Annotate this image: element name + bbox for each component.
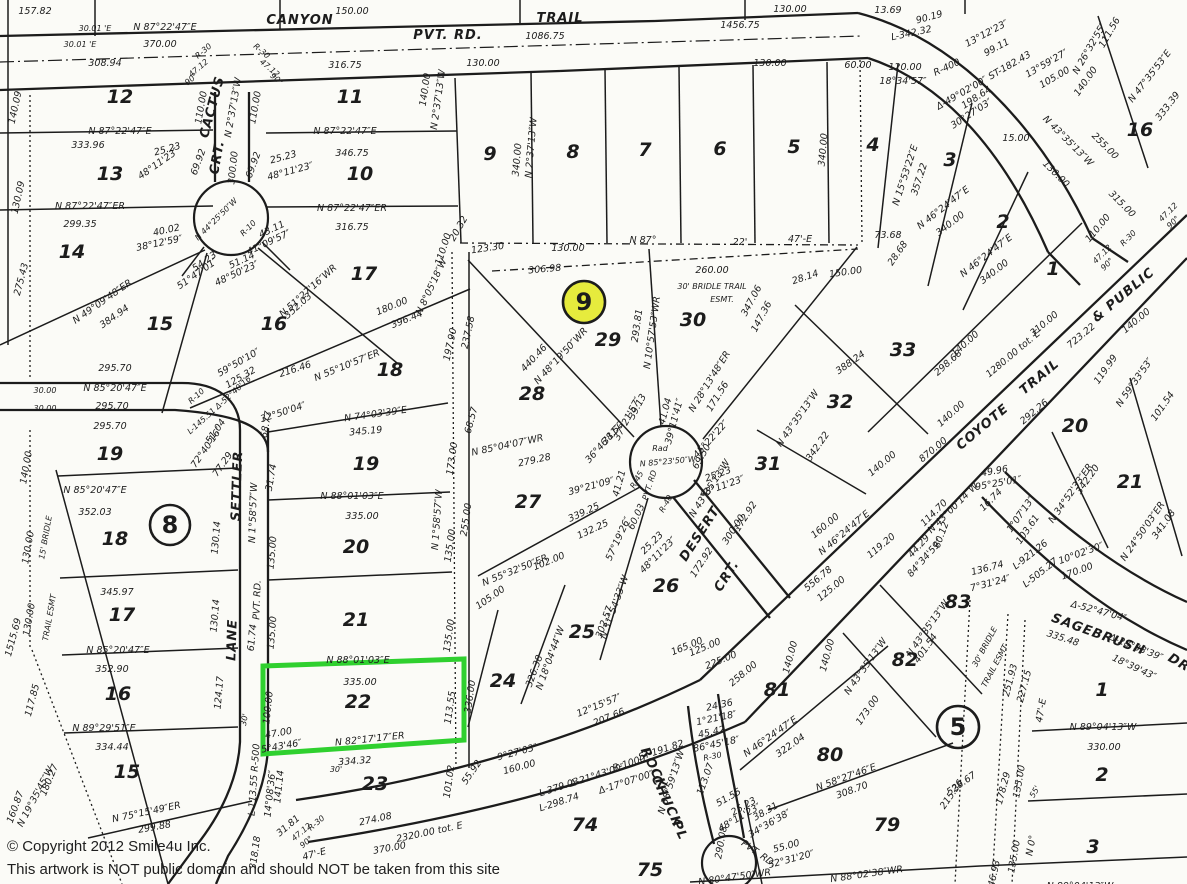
lot-number: 18 — [102, 528, 128, 550]
measurement-label: 140.00 — [418, 72, 434, 106]
measurement-label: N 87°22'47″ER — [317, 203, 387, 214]
lot-boundary-line — [860, 60, 862, 243]
measurement-label: 22' — [733, 237, 748, 248]
measurement-label: 255.00 — [459, 502, 475, 536]
section8-marker-label: 8 — [162, 511, 179, 539]
street-name: LANE — [224, 619, 240, 662]
measurement-label: 333.96 — [71, 140, 104, 151]
measurement-label: 46.93 — [986, 859, 1002, 884]
measurement-label: 20.32 — [447, 214, 470, 243]
section5-marker-label: 5 — [950, 713, 967, 741]
measurement-label: N 1°58'57″W — [430, 489, 445, 551]
measurement-label: 30' BRIDLE TRAIL — [677, 282, 746, 291]
measurement-label: N 87° — [630, 235, 657, 246]
measurement-label: 105.00 — [474, 584, 508, 612]
measurement-label: 225.00 — [704, 649, 739, 672]
measurement-label: 28.14 — [791, 268, 820, 287]
measurement-label: 340.00 — [511, 143, 525, 177]
measurement-label: 298.68 — [932, 348, 964, 378]
measurement-label: 342.22 — [804, 430, 832, 464]
measurement-label: 130.14 — [209, 599, 223, 633]
measurement-label: 370.00 — [372, 840, 407, 857]
lot-number: 3 — [1086, 836, 1099, 858]
lot-number: 24 — [490, 670, 516, 692]
measurement-label: N 87°22'47″E — [133, 22, 196, 33]
plat-map-drawing: 985157.82150.00130.0013.6990.1930.01 'EN… — [0, 0, 1187, 884]
measurement-label: 333.39 — [1153, 90, 1182, 123]
lot-number: 17 — [109, 604, 136, 626]
measurement-label: 315.00 — [1106, 189, 1137, 220]
measurement-label: 335.00 — [345, 511, 378, 522]
measurement-label: N 80°47'50″WR — [698, 867, 772, 884]
lot-number: 17 — [351, 263, 378, 285]
lot-number: 26 — [653, 575, 679, 597]
road-edge-path — [0, 410, 268, 452]
street-name: PVT. RD. — [413, 28, 482, 43]
lot-number: 13 — [97, 163, 123, 185]
measurement-label: N 0° — [1024, 834, 1038, 857]
measurement-label: 316.75 — [328, 60, 361, 71]
measurement-label: 10°02'30″ — [1057, 540, 1106, 567]
measurement-label: 100.00 — [261, 691, 275, 725]
measurement-label: 330.00 — [1087, 742, 1120, 753]
lot-number: 32 — [827, 391, 853, 413]
measurement-label: 25.23 — [269, 149, 298, 167]
measurement-label: 41.21 — [611, 469, 629, 498]
lot-number: 2 — [1095, 764, 1108, 786]
measurement-label: 113.55 — [443, 690, 459, 724]
measurement-label: 60.00 — [844, 60, 871, 71]
measurement-label: TRAIL ESMT — [41, 592, 58, 641]
lot-boundary-line — [795, 305, 928, 434]
lot-number: 82 — [892, 649, 918, 671]
street-name: DR — [1165, 651, 1187, 675]
lot-number: 16 — [261, 313, 287, 335]
measurement-label: 135.00 — [1011, 764, 1028, 799]
lot-number: 80 — [817, 744, 843, 766]
lot-number: 6 — [713, 138, 726, 160]
lot-number: 11 — [337, 86, 363, 108]
measurement-label: Rad — [652, 444, 668, 453]
lot-number: 1 — [1095, 679, 1108, 701]
measurement-label: 157.82 — [18, 6, 51, 17]
street-name: CANYON — [266, 13, 333, 28]
lot-number: 27 — [515, 491, 542, 513]
measurement-label: N 87°22'47″ER — [55, 201, 125, 212]
measurement-label: 132.25 — [576, 518, 611, 542]
measurement-label: 150.00 — [335, 6, 368, 17]
lot-number: 81 — [764, 679, 790, 701]
measurement-label: 352.03 — [78, 507, 111, 518]
measurement-label: 293.81 — [630, 308, 646, 342]
measurement-label: 55.92 — [460, 758, 485, 787]
measurement-label: 279.28 — [517, 452, 552, 470]
measurement-label: 90° — [268, 71, 285, 87]
measurement-label: 30' — [239, 713, 250, 727]
measurement-label: 260.00 — [695, 265, 728, 276]
measurement-label: 316.75 — [335, 222, 368, 233]
measurement-label: 237.58 — [460, 315, 478, 350]
measurement-label: 352.90 — [95, 664, 128, 675]
measurement-label: 140.00 — [18, 450, 35, 485]
measurement-label: N 43°35'13″W — [842, 636, 890, 697]
measurement-label: R-30 — [1118, 228, 1138, 248]
measurement-label: 870.00 — [917, 435, 950, 465]
lot-number: 83 — [945, 591, 971, 613]
measurement-label: 396.44 — [390, 308, 425, 331]
measurement-label: 130.00 — [753, 58, 786, 69]
measurement-label: 130.00 — [551, 243, 584, 254]
lot-number: 28 — [519, 383, 545, 405]
measurement-label: N 87°22'47″E — [88, 126, 151, 137]
lot-number: 19 — [97, 443, 123, 465]
measurement-label: N 44°25'50″W — [193, 195, 240, 242]
lot-number: 29 — [595, 329, 621, 351]
measurement-label: 335.00 — [343, 677, 376, 688]
street-name: CRT. — [711, 558, 742, 595]
measurement-label: 36°46'11″ — [583, 423, 623, 466]
lot-number: 25 — [569, 621, 595, 643]
measurement-label: 345.19 — [349, 425, 383, 439]
measurement-label: 15.00 — [1002, 133, 1029, 144]
measurement-label: 295.70 — [95, 401, 128, 412]
measurement-label: 135.00 — [1006, 839, 1023, 874]
measurement-label: 102.00 — [532, 550, 567, 573]
lot-boundary-line — [1028, 794, 1187, 801]
measurement-label: R-400 — [932, 57, 962, 79]
measurement-label: ESMT. — [710, 295, 734, 304]
lot-number: 3 — [943, 149, 956, 171]
measurement-label: 28.68 — [886, 239, 911, 268]
lot-number: 33 — [890, 339, 916, 361]
measurement-label: N 55°10'57″ER — [313, 347, 382, 383]
measurement-label: 306.98 — [528, 263, 562, 277]
measurement-label: 1456.75 — [720, 20, 759, 31]
measurement-label: 31.74 — [264, 463, 280, 492]
lot-boundary-line — [60, 570, 238, 578]
measurement-label: N 1°58'57″W — [247, 482, 260, 544]
measurement-label: 130.00 — [20, 530, 37, 565]
lot-number: 4 — [865, 134, 879, 156]
measurement-label: 178.29 — [994, 771, 1013, 806]
measurement-label: 68.57 — [463, 406, 481, 435]
lot-number: 16 — [1127, 119, 1153, 141]
lot-number: 20 — [1062, 415, 1088, 437]
measurement-label: 388.24 — [834, 349, 868, 377]
lot-number: 16 — [105, 683, 131, 705]
lot-number: 5 — [787, 136, 800, 158]
measurement-label: 123.30 — [470, 241, 504, 257]
lot-number: 18 — [377, 359, 403, 381]
measurement-label: N 10°57'53″WR — [642, 296, 663, 370]
measurement-label: 73.68 — [874, 230, 901, 241]
measurement-label: 60.03 — [626, 502, 647, 531]
measurement-label: 140.00 — [781, 640, 800, 675]
measurement-label: 30.01 'E — [64, 40, 98, 49]
lot-number: 23 — [362, 773, 388, 795]
lot-number: 9 — [483, 143, 496, 165]
measurement-label: 124.17 — [213, 676, 227, 710]
measurement-label: 69.92 — [189, 147, 209, 176]
measurement-label: 18°34'57″ — [879, 76, 927, 87]
measurement-label: N 88°02'38″WR — [830, 864, 904, 884]
lot-number: 15 — [147, 313, 173, 335]
measurement-label: 39°21'09″ — [567, 475, 616, 498]
measurement-label: 69.92 — [244, 150, 264, 179]
measurement-label: 130.00 — [21, 602, 38, 637]
measurement-label: 101.02 — [442, 764, 458, 798]
lot-number: 8 — [566, 141, 579, 163]
street-name: TRAIL — [1017, 356, 1063, 398]
lot-boundary-line — [878, 64, 898, 248]
measurement-label: 130.00 — [773, 4, 806, 15]
measurement-label: 120.00 — [888, 62, 921, 73]
measurement-label: 135.00 — [443, 528, 459, 562]
measurement-label: 140.00 — [935, 399, 967, 429]
disclaimer-text: This artwork is NOT public domain and sh… — [7, 861, 500, 878]
road-edge-line — [560, 58, 868, 71]
lot-boundary-line — [679, 67, 681, 243]
lot-number: 19 — [353, 453, 379, 475]
measurement-label: 334.44 — [95, 742, 128, 753]
lot-number: 74 — [572, 814, 598, 836]
measurement-label: 1515.69 — [3, 617, 24, 658]
lot-boundary-line — [753, 65, 755, 243]
measurement-label: N 85°20'47″E — [86, 645, 149, 656]
measurement-label: 47'-E — [788, 234, 812, 245]
measurement-label: 135.00 — [266, 616, 280, 650]
measurement-label: 173.00 — [445, 441, 461, 475]
measurement-label: 135.00 — [266, 536, 280, 570]
lot-number: 31 — [755, 453, 781, 475]
measurement-label: N 85°20'47″E — [83, 383, 146, 394]
measurement-label: N 89°04'13″W — [1070, 722, 1137, 733]
measurement-label: 274.08 — [358, 811, 393, 829]
measurement-label: 140.00 — [866, 449, 899, 479]
measurement-label: R-10 — [238, 218, 258, 238]
measurement-label: PVT. RD. — [251, 580, 263, 620]
measurement-label: 47'-E — [1034, 698, 1049, 724]
lot-number: 14 — [59, 241, 85, 263]
lot-number: 22 — [345, 691, 371, 713]
measurement-label: 345.97 — [100, 587, 133, 598]
measurement-label: 300.00 — [226, 151, 240, 185]
copyright-notice: © Copyright 2012 Smile4u Inc. — [7, 838, 211, 855]
measurement-label: N 8°05'18″W — [414, 257, 450, 317]
measurement-label: 61.74 — [246, 624, 260, 652]
measurement-label: 295.70 — [93, 421, 126, 432]
measurement-label: N 2°37'13″W — [523, 116, 539, 178]
lot-number: 79 — [874, 814, 900, 836]
street-name: SETTLER — [229, 450, 246, 521]
measurement-label: 15' BRIDLE — [37, 514, 54, 560]
measurement-label: 130.00 — [1040, 159, 1071, 190]
measurement-label: N 87°22'47″E — [313, 126, 376, 137]
measurement-label: R-30 — [252, 42, 272, 61]
measurement-label: L-113.55 R-500 — [246, 743, 262, 816]
measurement-label: N 85°23'50″W — [639, 454, 697, 468]
measurement-label: N 88°01'03″E — [326, 655, 389, 666]
plat-map-canvas: 985157.82150.00130.0013.6990.1930.01 'EN… — [0, 0, 1187, 884]
measurement-label: 308.94 — [88, 58, 121, 69]
measurement-label: N 47°35'53″E — [1126, 48, 1174, 105]
street-name: TRAIL — [536, 11, 583, 26]
measurement-label: N 85°20'47″E — [63, 485, 126, 496]
lot-number: 10 — [347, 163, 373, 185]
measurement-label: 295.70 — [98, 363, 131, 374]
measurement-label: N 89°29'51″E — [72, 723, 135, 734]
lot-number: 20 — [343, 536, 369, 558]
measurement-label: 292.26 — [1018, 397, 1051, 427]
street-name: CRT. — [207, 139, 228, 176]
measurement-label: 30.01 'E — [79, 24, 113, 33]
measurement-label: N 59°33'53″ — [1114, 356, 1156, 410]
measurement-label: 255.00 — [1089, 131, 1120, 162]
measurement-label: 290.08 — [713, 825, 730, 860]
measurement-label: 173.00 — [854, 694, 882, 728]
section9-marker-label: 9 — [576, 288, 593, 316]
measurement-label: 1086.75 — [525, 31, 564, 42]
lot-boundary-line — [605, 69, 607, 243]
measurement-label: R-30 — [306, 814, 326, 833]
measurement-label: 197.90 — [442, 327, 460, 362]
measurement-label: 130.00 — [466, 58, 499, 69]
measurement-label: 346.75 — [335, 148, 368, 159]
measurement-label: 117.85 — [23, 683, 42, 718]
measurement-label: N 88°01'03″E — [320, 491, 383, 502]
measurement-label: 55' — [1028, 784, 1042, 799]
lot-number: 1 — [1046, 258, 1059, 280]
measurement-label: 101.54 — [1149, 390, 1177, 424]
lot-number: 21 — [343, 609, 369, 631]
measurement-label: 299.35 — [63, 219, 96, 230]
lot-number: 30 — [680, 309, 706, 331]
measurement-label: 216.46 — [278, 359, 313, 380]
lot-number: 15 — [114, 761, 140, 783]
measurement-label: N 74°03'39″E — [344, 405, 408, 425]
lot-boundary-line — [268, 572, 452, 580]
measurement-label: 275.43 — [12, 262, 31, 297]
lot-number: 2 — [996, 211, 1009, 233]
measurement-label: N 46°24'47″E — [741, 714, 799, 759]
lot-number: 75 — [637, 859, 663, 881]
measurement-label: 370.00 — [143, 39, 176, 50]
measurement-label: 140.09 — [7, 90, 25, 125]
measurement-label: 30.00 — [34, 404, 57, 413]
lot-number: 7 — [638, 139, 652, 161]
measurement-label: 119.99 — [1092, 353, 1120, 387]
measurement-label: 13.69 — [874, 5, 901, 16]
lot-number: 12 — [107, 86, 133, 108]
lot-number: 21 — [1117, 471, 1143, 493]
measurement-label: 119.20 — [865, 531, 898, 561]
measurement-label: 130.14 — [210, 521, 224, 555]
measurement-label: 150.00 — [828, 265, 862, 281]
measurement-label: 258.00 — [727, 659, 760, 689]
measurement-label: 334.32 — [338, 755, 372, 768]
lot-boundary-line — [955, 600, 970, 884]
measurement-label: 30.00 — [34, 386, 57, 395]
